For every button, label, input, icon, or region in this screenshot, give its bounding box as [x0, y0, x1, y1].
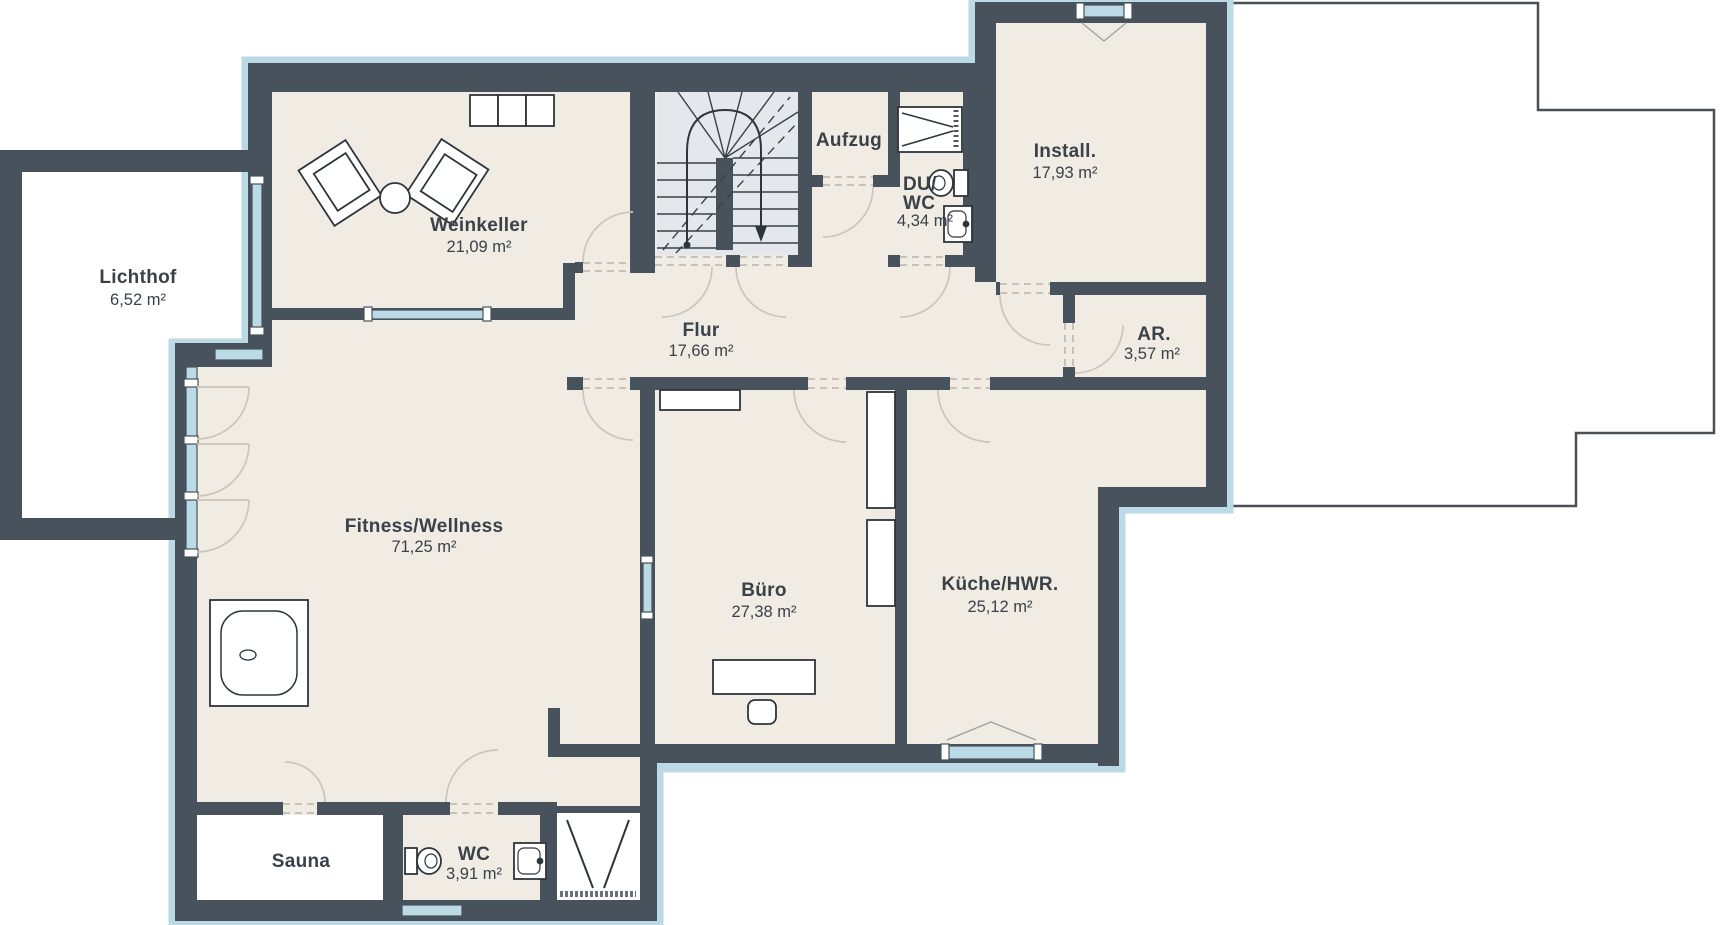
lightwell-wall — [0, 150, 250, 172]
window-weinkeller-west — [252, 180, 262, 330]
floor-plan-canvas: Lichthof 6,52 m² Weinkeller 21,09 m² Auf… — [0, 0, 1720, 925]
label-buero: Büro — [741, 580, 787, 601]
label-ar-area: 3,57 m² — [1124, 345, 1180, 363]
label-install-area: 17,93 m² — [1032, 164, 1098, 182]
shower-icon — [898, 107, 962, 152]
window-kueche — [945, 746, 1038, 759]
toilet-icon — [405, 848, 441, 874]
label-duwc-line2: WC — [903, 193, 935, 214]
label-aufzug: Aufzug — [816, 130, 882, 151]
wall-segment — [1098, 487, 1119, 766]
desk-chair-icon — [748, 700, 776, 724]
label-sauna: Sauna — [272, 851, 331, 872]
bathtub-icon — [210, 600, 308, 706]
label-flur: Flur — [682, 320, 719, 341]
wall-segment — [548, 744, 640, 757]
wall-segment — [630, 92, 655, 273]
wall-segment — [726, 255, 740, 267]
wall-segment — [640, 744, 657, 921]
wall-segment — [567, 377, 1206, 390]
shelf-icon — [498, 95, 526, 126]
label-fitness: Fitness/Wellness — [345, 516, 504, 537]
closet-icon — [660, 390, 740, 410]
label-lichthof-area: 6,52 m² — [110, 291, 166, 309]
window-fitness-west — [186, 367, 197, 558]
wall-segment — [798, 92, 812, 255]
label-install: Install. — [1034, 141, 1097, 162]
wall-segment — [548, 806, 643, 813]
glazing-buero-west — [643, 560, 652, 615]
label-wc: WC — [458, 844, 490, 865]
label-wc-area: 3,91 m² — [446, 865, 502, 883]
wall-segment — [563, 263, 575, 320]
coffee-table-icon — [380, 183, 410, 213]
label-weinkeller-area: 21,09 m² — [446, 238, 512, 256]
label-weinkeller: Weinkeller — [430, 215, 528, 236]
floor-plan: Lichthof 6,52 m² Weinkeller 21,09 m² Auf… — [0, 0, 1720, 925]
wall-segment — [975, 21, 996, 282]
window-wc — [402, 905, 462, 916]
label-duwc-area: 4,34 m² — [897, 212, 953, 230]
wall-segment — [1063, 295, 1075, 323]
window-weinkeller-south — [368, 310, 487, 319]
label-lichthof: Lichthof — [99, 267, 177, 288]
wall-segment — [548, 708, 560, 744]
sink-icon — [514, 843, 546, 879]
window-install — [1080, 5, 1128, 17]
closet-icon — [867, 520, 895, 606]
label-kueche-area: 25,12 m² — [967, 598, 1033, 616]
label-kueche: Küche/HWR. — [942, 574, 1059, 595]
wall-segment — [640, 744, 1119, 763]
wall-segment — [248, 63, 975, 92]
wall-segment — [1206, 2, 1227, 507]
desk-icon — [713, 660, 815, 694]
lightwell-wall — [0, 150, 22, 540]
shelf-icon — [470, 95, 498, 126]
wall-segment — [788, 255, 812, 267]
wall-segment — [1063, 367, 1075, 390]
label-flur-area: 17,66 m² — [668, 342, 734, 360]
closet-icon — [867, 392, 895, 508]
stair-spine-wall — [716, 158, 733, 250]
shelf-icon — [526, 95, 554, 126]
label-fitness-area: 71,25 m² — [391, 538, 457, 556]
label-ar: AR. — [1137, 324, 1171, 345]
window-step — [215, 349, 263, 360]
lightwell-wall — [0, 518, 197, 540]
label-duwc-line1: DU/ — [903, 174, 937, 195]
label-buero-area: 27,38 m² — [731, 603, 797, 621]
wall-segment — [383, 802, 403, 900]
wall-segment — [895, 387, 907, 744]
